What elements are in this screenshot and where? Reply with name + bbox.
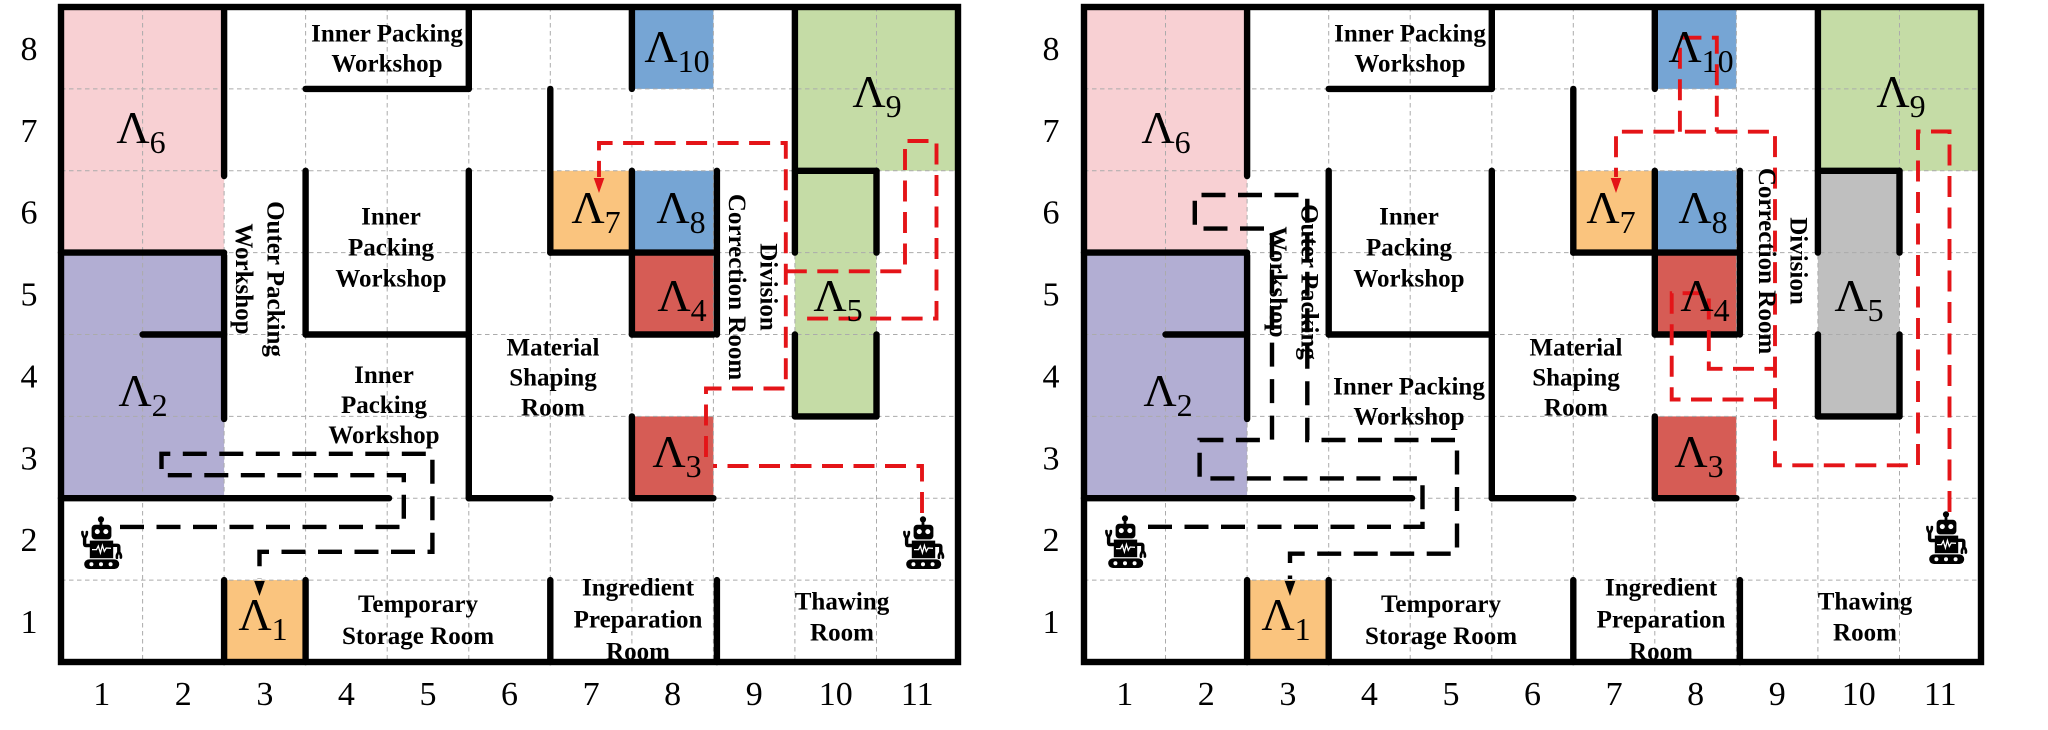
svg-text:4: 4 xyxy=(1361,676,1378,713)
svg-text:10: 10 xyxy=(1842,676,1876,713)
svg-text:Temporary: Temporary xyxy=(358,591,478,618)
svg-text:Shaping: Shaping xyxy=(509,364,597,391)
svg-text:Correction Room: Correction Room xyxy=(1753,168,1780,354)
svg-text:6: 6 xyxy=(1043,195,1060,232)
svg-text:Workshop: Workshop xyxy=(1264,226,1291,337)
svg-text:5: 5 xyxy=(1443,676,1460,713)
svg-text:Workshop: Workshop xyxy=(1353,403,1464,430)
svg-text:Packing: Packing xyxy=(341,392,428,419)
svg-text:Ingredient: Ingredient xyxy=(582,574,695,601)
svg-text:Storage Room: Storage Room xyxy=(1365,623,1517,650)
svg-text:2: 2 xyxy=(175,676,192,713)
svg-text:Thawing: Thawing xyxy=(1818,588,1913,615)
svg-text:7: 7 xyxy=(1606,676,1623,713)
svg-text:9: 9 xyxy=(746,676,763,713)
svg-text:Shaping: Shaping xyxy=(1532,364,1620,391)
svg-text:8: 8 xyxy=(1043,31,1060,68)
svg-text:Ingredient: Ingredient xyxy=(1605,574,1718,601)
svg-text:Room: Room xyxy=(1544,394,1608,421)
svg-text:1: 1 xyxy=(1043,604,1060,641)
svg-text:1: 1 xyxy=(1116,676,1133,713)
svg-text:6: 6 xyxy=(501,676,518,713)
svg-text:2: 2 xyxy=(1198,676,1215,713)
svg-text:Packing: Packing xyxy=(348,234,435,261)
svg-text:2: 2 xyxy=(21,522,38,559)
svg-text:Workshop: Workshop xyxy=(1354,50,1465,77)
svg-text:Packing: Packing xyxy=(1366,234,1453,261)
svg-text:Room: Room xyxy=(1629,638,1693,665)
svg-text:7: 7 xyxy=(21,113,38,150)
svg-text:Inner: Inner xyxy=(354,362,414,389)
svg-text:Preparation: Preparation xyxy=(574,606,703,633)
svg-text:Workshop: Workshop xyxy=(230,223,257,334)
svg-text:5: 5 xyxy=(1043,277,1060,314)
svg-text:Division: Division xyxy=(754,243,781,331)
svg-text:4: 4 xyxy=(21,358,38,395)
svg-text:9: 9 xyxy=(1769,676,1786,713)
svg-text:Preparation: Preparation xyxy=(1597,606,1726,633)
svg-text:Inner Packing: Inner Packing xyxy=(1334,20,1486,47)
svg-text:Material: Material xyxy=(1529,334,1622,361)
svg-text:2: 2 xyxy=(1043,522,1060,559)
svg-text:10: 10 xyxy=(819,676,853,713)
svg-text:11: 11 xyxy=(1924,676,1957,713)
svg-text:5: 5 xyxy=(21,277,38,314)
svg-text:Thawing: Thawing xyxy=(795,588,890,615)
svg-text:Room: Room xyxy=(810,619,874,646)
svg-text:3: 3 xyxy=(256,676,273,713)
svg-text:Inner: Inner xyxy=(361,203,421,230)
svg-text:4: 4 xyxy=(1043,358,1060,395)
svg-text:8: 8 xyxy=(664,676,681,713)
svg-text:Workshop: Workshop xyxy=(331,50,442,77)
svg-text:Workshop: Workshop xyxy=(328,422,439,449)
svg-text:7: 7 xyxy=(583,676,600,713)
svg-text:Material: Material xyxy=(506,334,599,361)
svg-text:11: 11 xyxy=(901,676,934,713)
svg-text:Workshop: Workshop xyxy=(1353,265,1464,292)
svg-text:Inner: Inner xyxy=(1379,203,1439,230)
svg-text:Room: Room xyxy=(606,638,670,665)
svg-text:8: 8 xyxy=(21,31,38,68)
svg-text:7: 7 xyxy=(1043,113,1060,150)
svg-text:8: 8 xyxy=(1687,676,1704,713)
svg-text:Inner Packing: Inner Packing xyxy=(1333,373,1485,400)
svg-text:Storage Room: Storage Room xyxy=(342,623,494,650)
svg-text:3: 3 xyxy=(1279,676,1296,713)
svg-text:3: 3 xyxy=(21,440,38,477)
svg-text:Division: Division xyxy=(1784,217,1811,305)
svg-text:6: 6 xyxy=(1524,676,1541,713)
svg-text:3: 3 xyxy=(1043,440,1060,477)
svg-text:1: 1 xyxy=(93,676,110,713)
svg-text:Temporary: Temporary xyxy=(1381,591,1501,618)
svg-text:Inner Packing: Inner Packing xyxy=(311,20,463,47)
svg-text:5: 5 xyxy=(420,676,437,713)
svg-text:Correction Room: Correction Room xyxy=(723,194,750,380)
svg-text:4: 4 xyxy=(338,676,355,713)
svg-text:Room: Room xyxy=(521,394,585,421)
svg-text:Room: Room xyxy=(1833,619,1897,646)
svg-text:1: 1 xyxy=(21,604,38,641)
svg-text:Outer Packing: Outer Packing xyxy=(261,201,288,357)
svg-text:6: 6 xyxy=(21,195,38,232)
svg-text:Workshop: Workshop xyxy=(335,265,446,292)
svg-text:Outer Packing: Outer Packing xyxy=(1295,204,1322,360)
